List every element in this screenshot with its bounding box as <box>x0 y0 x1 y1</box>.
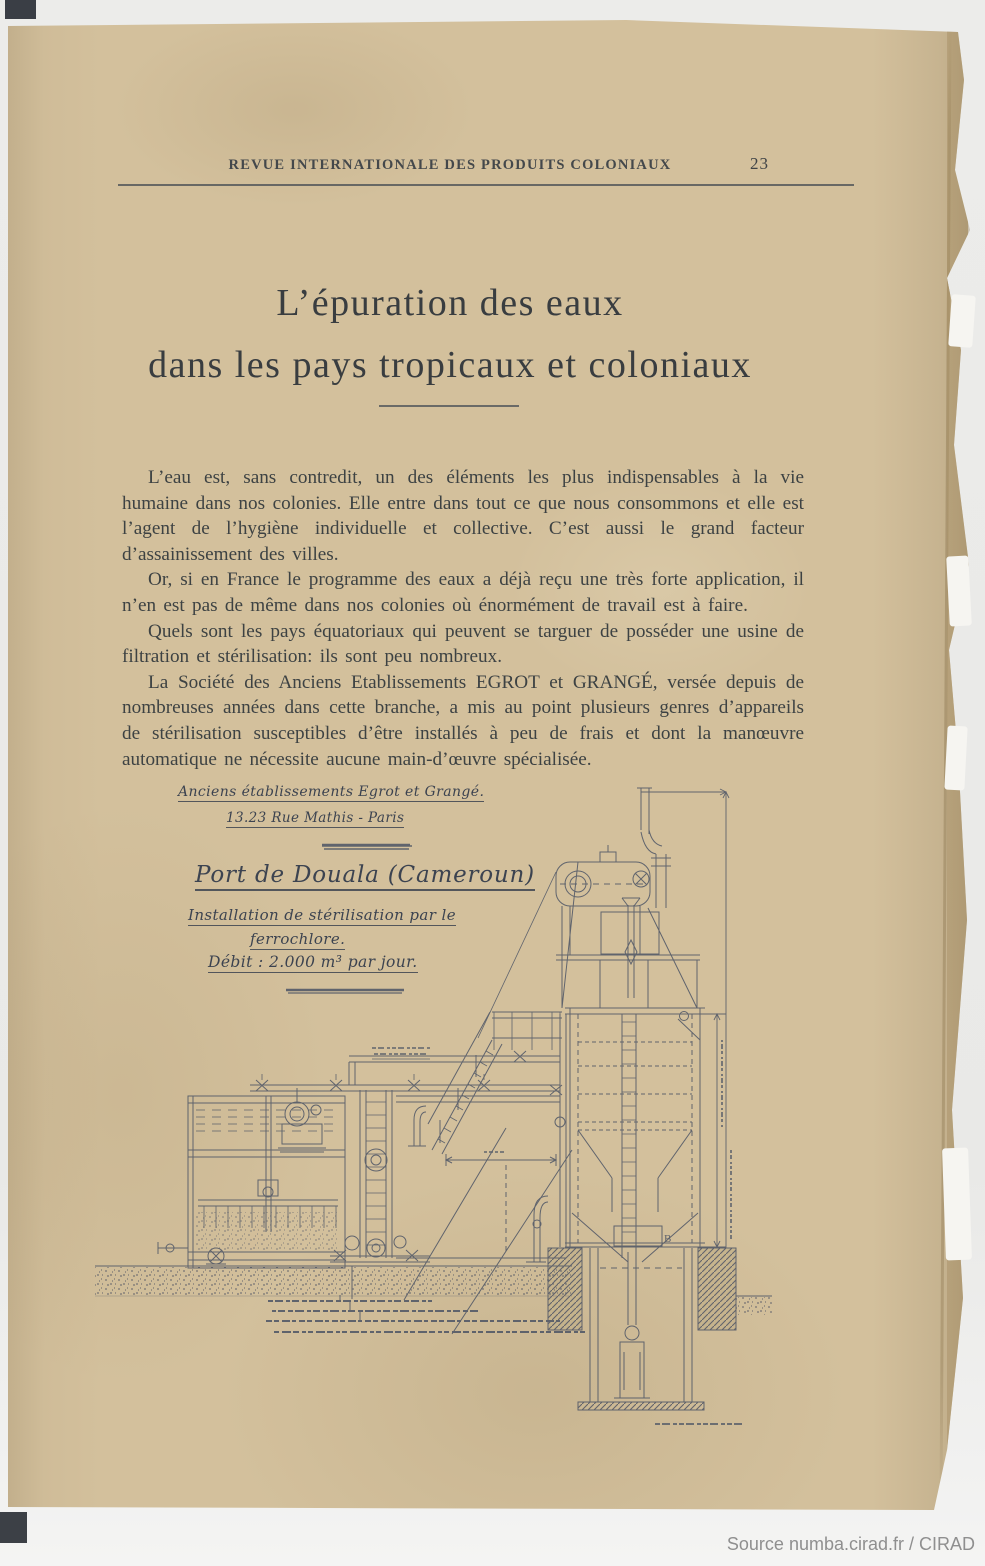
header-rule <box>118 184 854 186</box>
title-rule <box>379 405 519 407</box>
source-text: Source numba.cirad.fr / CIRAD <box>727 1534 975 1554</box>
article-body: L’eau est, sans contredit, un des élémen… <box>122 465 804 772</box>
article-title-line2: dans les pays tropicaux et coloniaux <box>125 334 775 396</box>
article-title-line1: L’épuration des eaux <box>125 272 775 334</box>
torn-edge-highlight <box>946 555 972 626</box>
book-cover-corner-top <box>5 0 36 19</box>
figure-firm-line1: Anciens établissements Egrot et Grangé. <box>178 784 484 802</box>
figure-firm-line2: 13.23 Rue Mathis - Paris <box>226 810 404 828</box>
figure-flow-rate: Débit : 2.000 m³ par jour. <box>208 953 418 973</box>
torn-edge-highlight <box>944 726 967 791</box>
torn-edge-highlight <box>942 1148 972 1261</box>
page-number: 23 <box>750 154 769 174</box>
figure-subtitle-line1: Installation de stérilisation par le <box>188 906 456 926</box>
paragraph: L’eau est, sans contredit, un des élémen… <box>122 465 804 567</box>
paragraph: Quels sont les pays équatoriaux qui peuv… <box>122 619 804 670</box>
source-bar: Source numba.cirad.fr / CIRAD <box>0 1534 975 1566</box>
paragraph: La Société des Anciens Etablissements EG… <box>122 670 804 772</box>
scan-viewport: REVUE INTERNATIONALE DES PRODUITS COLONI… <box>0 0 985 1566</box>
paragraph: Or, si en France le programme des eaux a… <box>122 567 804 618</box>
figure-location-title: Port de Douala (Cameroun) <box>195 862 535 891</box>
figure-subtitle-line2: ferrochlore. <box>250 930 345 950</box>
journal-header: REVUE INTERNATIONALE DES PRODUITS COLONI… <box>120 157 780 174</box>
torn-edge-highlight <box>948 294 976 348</box>
article-title: L’épuration des eaux dans les pays tropi… <box>125 272 775 396</box>
